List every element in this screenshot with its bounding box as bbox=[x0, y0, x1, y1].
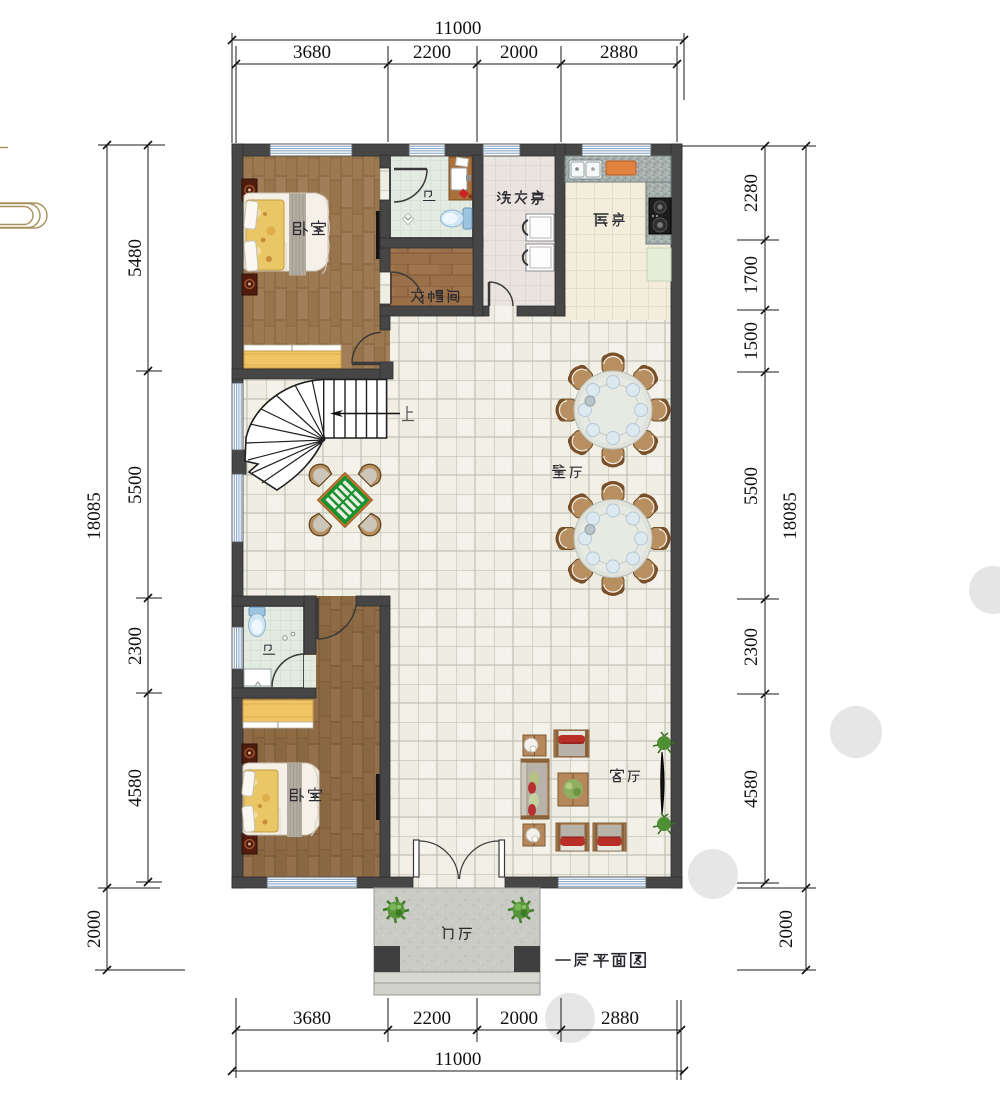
svg-text:2000: 2000 bbox=[84, 910, 105, 948]
svg-text:1500: 1500 bbox=[741, 322, 762, 360]
svg-text:2200: 2200 bbox=[413, 42, 451, 63]
svg-text:3680: 3680 bbox=[293, 1008, 331, 1029]
svg-text:2880: 2880 bbox=[601, 1008, 639, 1029]
svg-text:2300: 2300 bbox=[125, 627, 146, 665]
svg-text:5480: 5480 bbox=[125, 239, 146, 277]
svg-text:2300: 2300 bbox=[741, 628, 762, 666]
svg-text:2000: 2000 bbox=[500, 1008, 538, 1029]
svg-text:5500: 5500 bbox=[741, 467, 762, 505]
svg-text:11000: 11000 bbox=[435, 1049, 482, 1070]
svg-text:4580: 4580 bbox=[741, 770, 762, 808]
svg-text:18085: 18085 bbox=[84, 492, 105, 540]
svg-text:2880: 2880 bbox=[600, 42, 638, 63]
svg-text:3680: 3680 bbox=[293, 42, 331, 63]
svg-text:2000: 2000 bbox=[776, 910, 797, 948]
svg-text:2000: 2000 bbox=[500, 42, 538, 63]
svg-text:11000: 11000 bbox=[435, 18, 482, 39]
svg-text:5500: 5500 bbox=[125, 466, 146, 504]
svg-text:4580: 4580 bbox=[125, 769, 146, 807]
svg-text:1700: 1700 bbox=[741, 256, 762, 294]
svg-text:2280: 2280 bbox=[741, 174, 762, 212]
svg-text:18085: 18085 bbox=[780, 492, 801, 540]
svg-text:2200: 2200 bbox=[413, 1008, 451, 1029]
